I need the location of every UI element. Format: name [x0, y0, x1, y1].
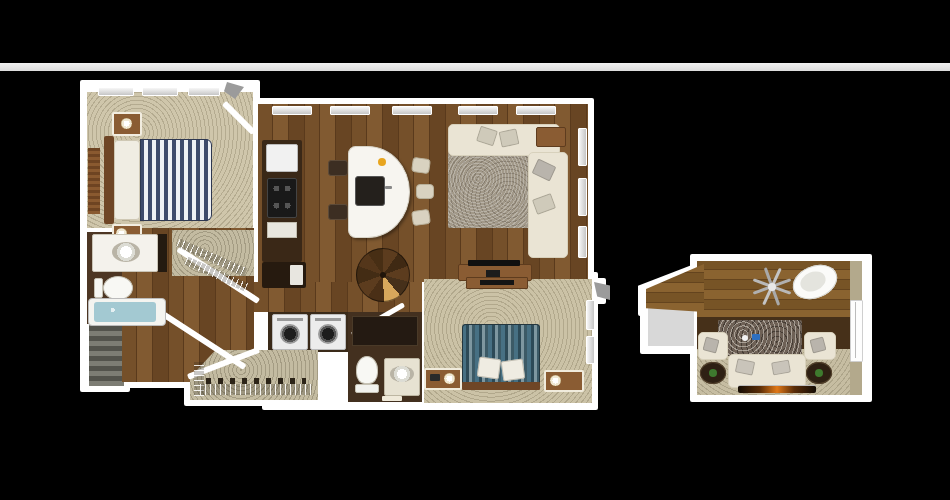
bed-2-pillow-1 — [477, 357, 502, 380]
closet-2-wire-shelf-bottom — [200, 384, 312, 395]
bathtub-water — [94, 302, 156, 322]
bathroom-1-sink — [112, 242, 140, 262]
bathroom-1-side-cabinet — [158, 234, 167, 272]
page-divider-band — [0, 63, 950, 71]
bed-2-footboard — [462, 382, 540, 390]
island-fruit-bowl — [378, 158, 386, 166]
island-faucet — [385, 186, 392, 189]
bedroom-2-window-2 — [586, 336, 595, 364]
dryer — [310, 314, 346, 350]
bedroom-1-slatted-runner — [88, 148, 100, 214]
entry-stairs — [86, 324, 124, 386]
bedroom-2-clock-left — [430, 374, 440, 381]
bathroom-2-shower — [352, 316, 418, 346]
spiral-staircase-center-pole — [380, 272, 386, 278]
bedroom-2-window-1 — [586, 300, 595, 330]
living-side-table — [536, 127, 566, 147]
bar-stool-1 — [411, 157, 431, 174]
bedroom-1-window-1 — [98, 87, 134, 96]
bed-1-striped-duvet — [140, 139, 212, 221]
bathroom-2-toilet-bowl — [356, 356, 378, 384]
bathroom-2-sink — [390, 366, 414, 382]
loft-plant-left — [709, 369, 717, 377]
loft-floor-wood-wedge — [646, 264, 704, 312]
loft-ceiling-fan — [752, 272, 792, 302]
dark-stool-2 — [328, 204, 348, 220]
kitchen-lower-cabinet-door — [290, 265, 303, 285]
floor-plan-canvas — [0, 0, 950, 500]
loft-coffee-items — [752, 334, 760, 340]
living-area-rug — [448, 152, 534, 228]
kitchen-counter-white — [267, 222, 297, 238]
loft-plant-right — [815, 369, 823, 377]
closet-2-shoe-row — [206, 378, 306, 384]
bed-1-pillows — [114, 140, 140, 220]
media-item — [486, 270, 500, 277]
bedroom-2-tv — [480, 280, 514, 285]
range-stove — [267, 178, 297, 218]
bar-stool-3 — [411, 209, 431, 226]
bedroom-1-window-2 — [142, 87, 178, 96]
bar-stool-2 — [416, 184, 434, 199]
bathroom-1-toilet-bowl — [103, 276, 133, 300]
dark-stool-1 — [328, 160, 348, 176]
greatroom-window-4 — [458, 106, 498, 115]
nightstand-top-lamp — [121, 118, 132, 129]
tv — [468, 260, 520, 266]
bathroom-1-toilet-tank — [94, 278, 103, 298]
greatroom-right-window-2 — [578, 178, 587, 216]
fan-hub — [768, 283, 776, 291]
loft-window-pane — [855, 302, 856, 358]
loft-stone-rug — [718, 320, 802, 356]
greatroom-window-1 — [272, 106, 312, 115]
greatroom-window-2 — [330, 106, 370, 115]
island-sink — [355, 176, 385, 206]
washer — [272, 314, 308, 350]
bathroom-2-toilet-tank — [355, 384, 379, 393]
bedroom-2-lamp-left — [444, 373, 455, 384]
bedroom-1-window-3 — [188, 87, 220, 96]
refrigerator — [266, 144, 298, 172]
bathroom-2-bathmat — [382, 396, 402, 401]
greatroom-window-5 — [516, 106, 556, 115]
greatroom-window-3 — [392, 106, 432, 115]
bed-2-pillow-2 — [501, 359, 526, 382]
bed-1-headboard — [104, 136, 114, 224]
loft-fireplace — [738, 385, 816, 393]
loft-window — [850, 300, 863, 362]
loft-coffee-cup — [742, 335, 748, 341]
bedroom-2-lamp-right — [550, 375, 561, 386]
greatroom-right-window-1 — [578, 128, 587, 166]
greatroom-right-window-3 — [578, 226, 587, 258]
bed-2-striped-duvet — [462, 324, 540, 384]
